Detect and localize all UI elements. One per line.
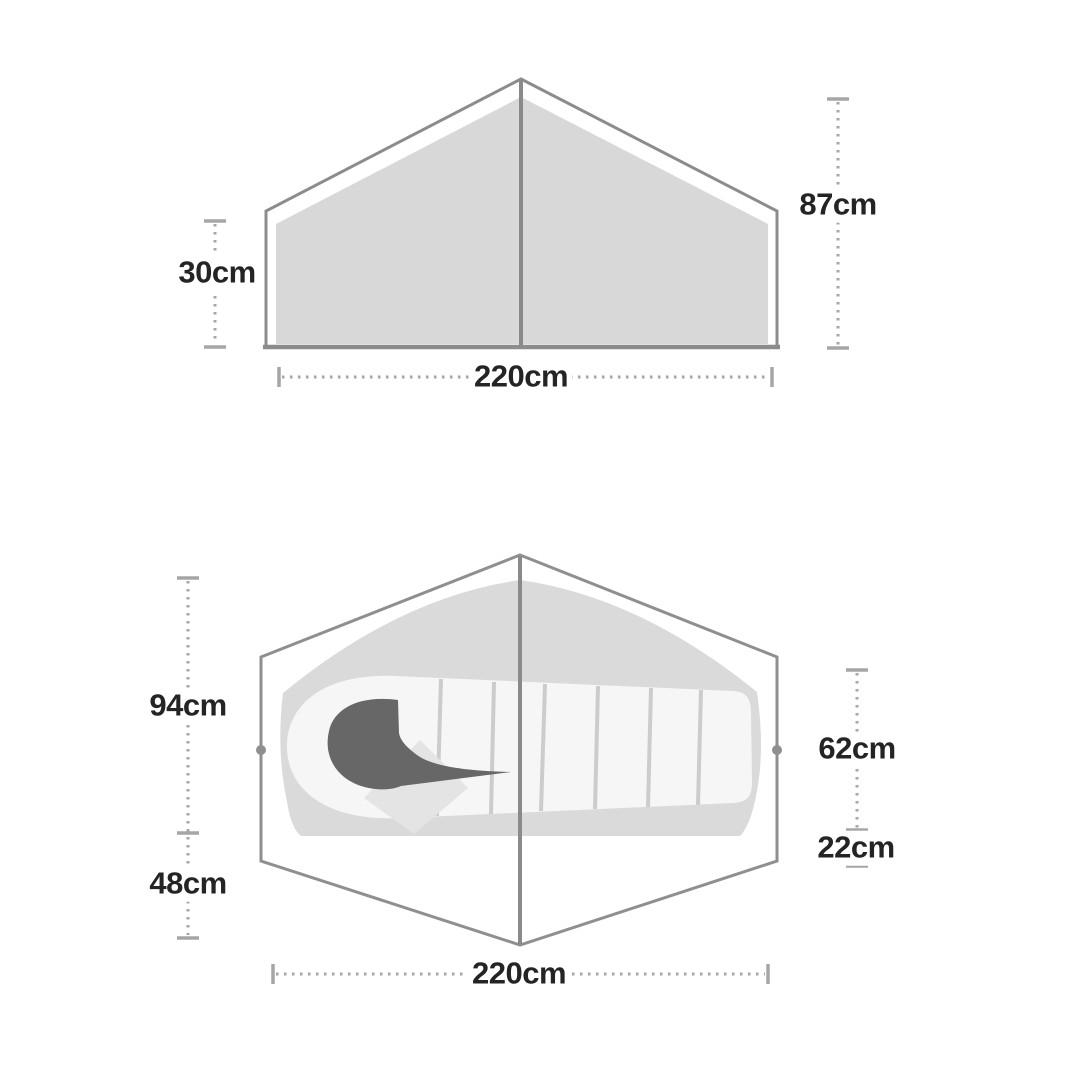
dim-label-side-width: 220cm bbox=[470, 360, 572, 395]
dim-label-plan-left-upper: 94cm bbox=[145, 689, 230, 724]
tent-dimension-diagram: 30cm 87cm 220cm 94cm 48cm 62cm 22cm 220c… bbox=[0, 0, 1080, 1080]
floor-plan-diagram bbox=[177, 555, 868, 984]
diagram-canvas bbox=[0, 0, 1080, 1080]
dim-label-plan-right-upper: 62cm bbox=[814, 732, 899, 767]
side-view-diagram bbox=[204, 79, 849, 387]
dim-label-peak-height: 87cm bbox=[795, 188, 880, 223]
dim-label-plan-left-lower: 48cm bbox=[145, 867, 230, 902]
dim-label-plan-right-lower: 22cm bbox=[813, 831, 898, 866]
dim-label-wall-height: 30cm bbox=[174, 256, 259, 291]
dim-line-peak-height bbox=[827, 99, 849, 348]
guy-point-dot-right bbox=[772, 745, 782, 755]
dim-label-plan-length: 220cm bbox=[468, 957, 570, 992]
guy-point-dot-left bbox=[256, 745, 266, 755]
